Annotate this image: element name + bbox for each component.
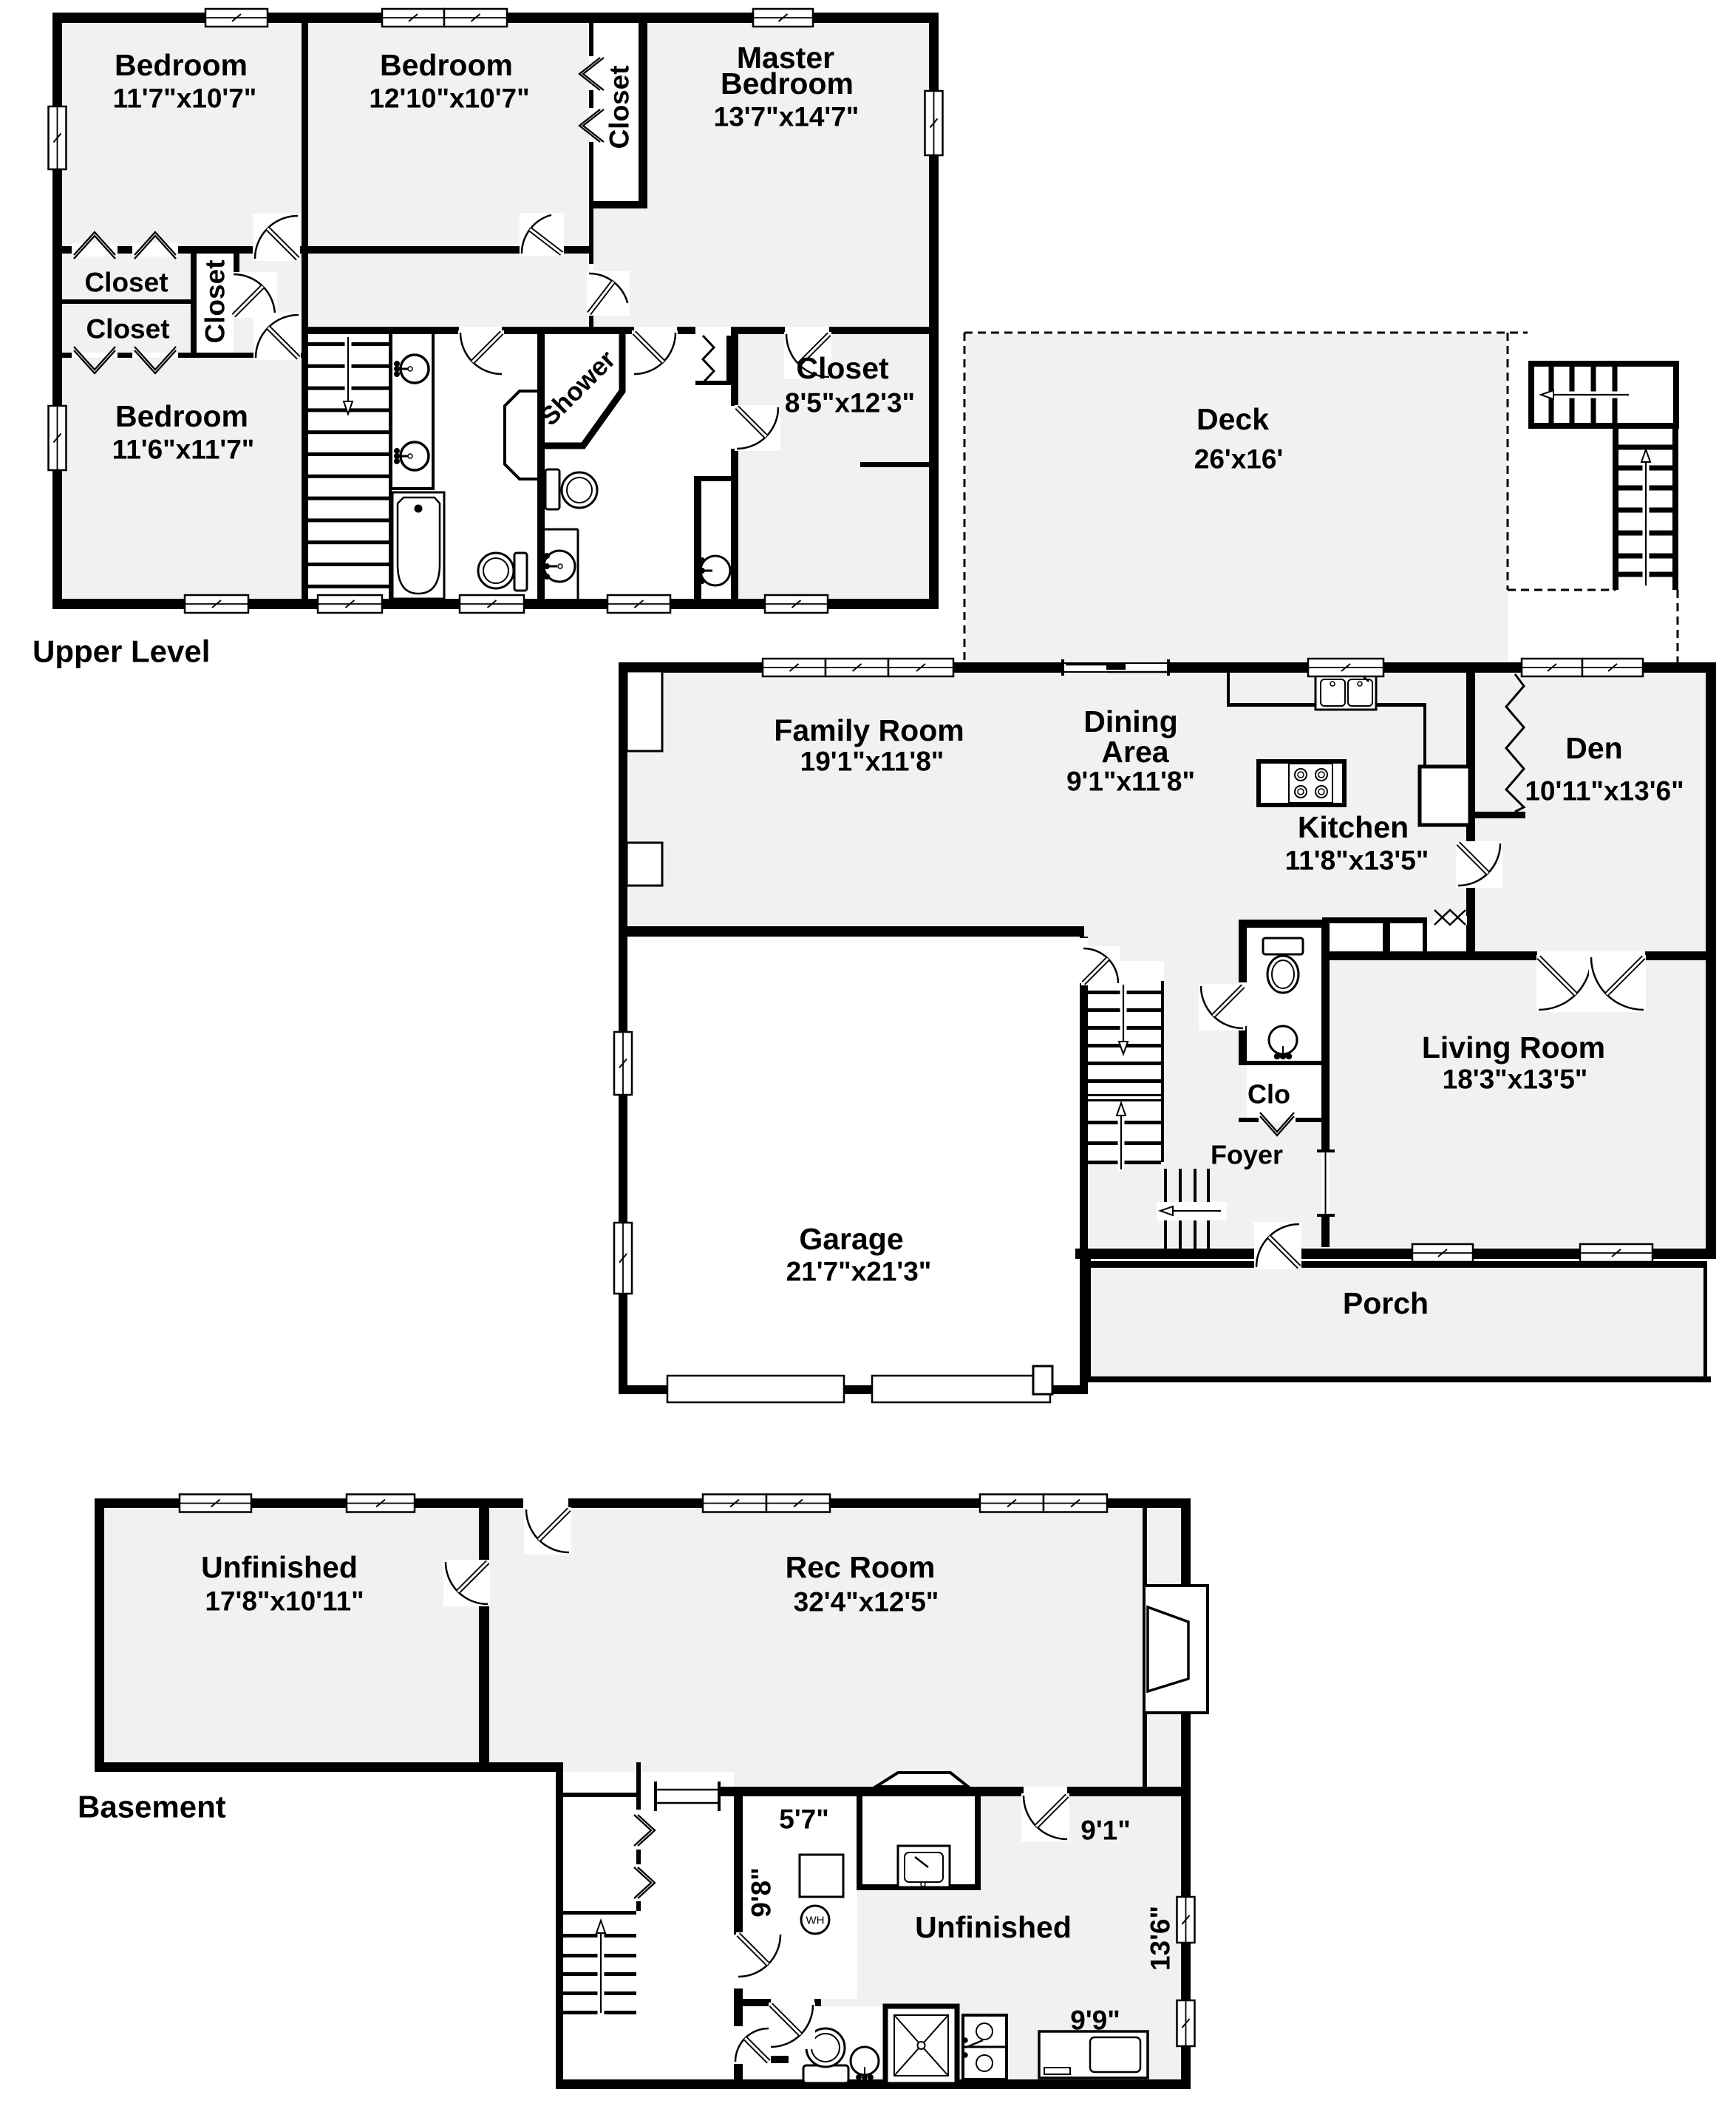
svg-text:Bedroom: Bedroom — [115, 48, 248, 82]
svg-text:Clo: Clo — [1247, 1079, 1290, 1110]
svg-text:Bedroom: Bedroom — [721, 67, 854, 101]
svg-text:13'6": 13'6" — [1146, 1906, 1176, 1971]
svg-text:13'7"x14'7": 13'7"x14'7" — [714, 102, 860, 132]
svg-text:Bedroom: Bedroom — [380, 48, 513, 82]
svg-text:Unfinished: Unfinished — [915, 1910, 1072, 1944]
svg-text:Closet: Closet — [605, 65, 635, 149]
svg-text:Deck: Deck — [1197, 402, 1269, 436]
svg-text:17'8"x10'11": 17'8"x10'11" — [205, 1586, 364, 1617]
svg-text:21'7"x21'3": 21'7"x21'3" — [786, 1257, 932, 1287]
svg-text:Foyer: Foyer — [1211, 1140, 1283, 1170]
svg-text:18'3"x13'5": 18'3"x13'5" — [1443, 1064, 1588, 1095]
svg-text:Area: Area — [1101, 735, 1169, 769]
svg-text:19'1"x11'8": 19'1"x11'8" — [800, 747, 944, 777]
svg-text:11'7"x10'7": 11'7"x10'7" — [113, 84, 257, 114]
svg-text:9'1": 9'1" — [1080, 1816, 1131, 1846]
svg-text:Family Room: Family Room — [774, 713, 964, 747]
svg-text:Closet: Closet — [200, 259, 231, 343]
svg-text:11'8"x13'5": 11'8"x13'5" — [1285, 846, 1429, 876]
svg-text:9'9": 9'9" — [1070, 2006, 1120, 2036]
svg-text:Upper Level: Upper Level — [33, 634, 210, 669]
svg-text:32'4"x12'5": 32'4"x12'5" — [794, 1587, 939, 1617]
svg-text:5'7": 5'7" — [779, 1804, 829, 1835]
svg-text:Kitchen: Kitchen — [1298, 810, 1409, 844]
svg-text:12'10"x10'7": 12'10"x10'7" — [369, 84, 529, 114]
svg-text:8'5"x12'3": 8'5"x12'3" — [785, 388, 915, 418]
svg-text:Garage: Garage — [799, 1222, 903, 1256]
svg-text:9'1"x11'8": 9'1"x11'8" — [1066, 767, 1195, 797]
svg-text:11'6"x11'7": 11'6"x11'7" — [112, 435, 255, 465]
svg-text:Closet: Closet — [86, 314, 169, 344]
svg-text:Basement: Basement — [78, 1790, 226, 1824]
svg-text:Den: Den — [1565, 731, 1622, 765]
svg-text:Closet: Closet — [84, 268, 168, 298]
svg-text:Rec Room: Rec Room — [786, 1550, 936, 1584]
svg-text:Unfinished: Unfinished — [201, 1550, 358, 1584]
svg-text:WH: WH — [806, 1915, 825, 1927]
svg-text:Closet: Closet — [796, 351, 889, 385]
svg-text:9'8": 9'8" — [746, 1867, 777, 1918]
svg-text:Dining: Dining — [1083, 704, 1178, 738]
svg-text:Living Room: Living Room — [1422, 1030, 1605, 1064]
svg-text:10'11"x13'6": 10'11"x13'6" — [1525, 776, 1684, 806]
svg-text:26'x16': 26'x16' — [1194, 444, 1284, 475]
svg-text:Porch: Porch — [1343, 1286, 1429, 1320]
svg-text:Bedroom: Bedroom — [115, 399, 248, 433]
